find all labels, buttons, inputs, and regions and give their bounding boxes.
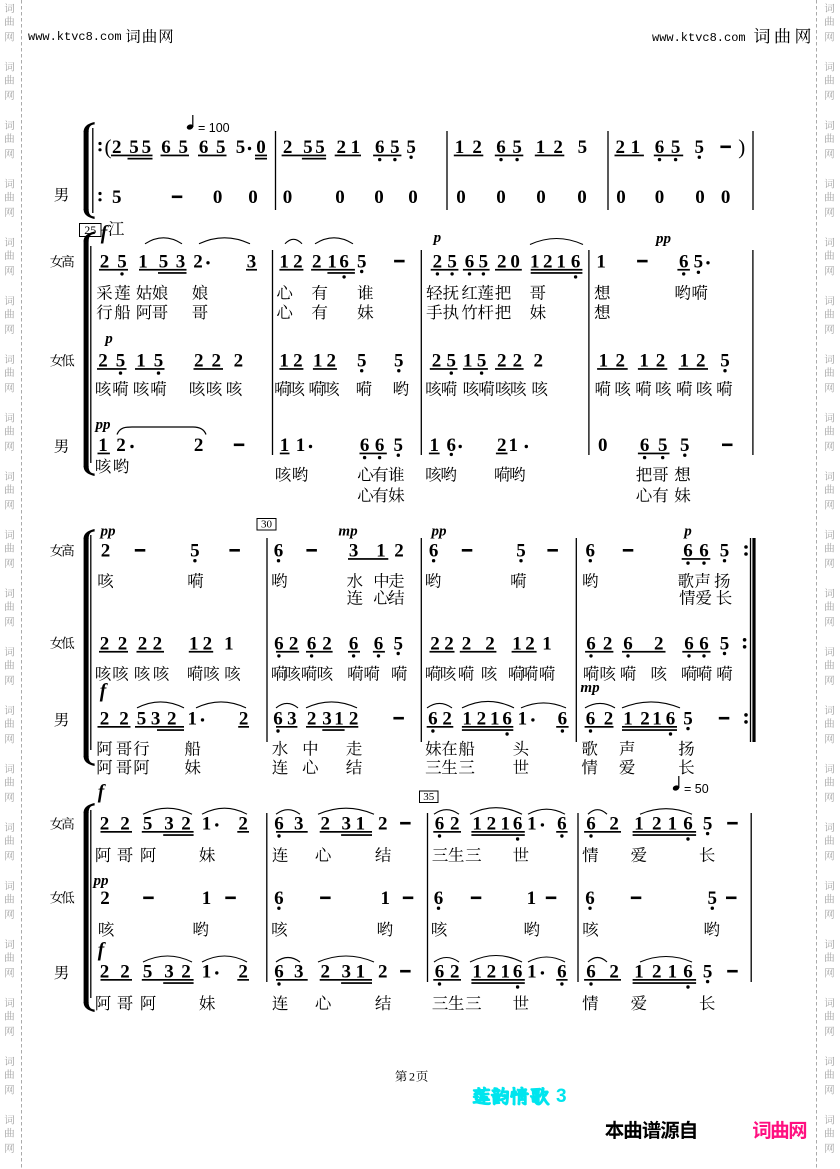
- svg-text:pp: pp: [430, 524, 448, 540]
- svg-text:5: 5: [708, 888, 718, 909]
- svg-text:2: 2: [101, 541, 111, 562]
- svg-text:5: 5: [516, 541, 526, 562]
- svg-text:1: 1: [381, 888, 391, 909]
- svg-text:1: 1: [527, 888, 537, 909]
- svg-text:00: 00: [213, 187, 258, 208]
- svg-text:5: 5: [703, 961, 713, 982]
- svg-text:pp: pp: [654, 231, 672, 247]
- svg-text:5: 5: [112, 187, 122, 208]
- svg-text:1: 1: [202, 888, 212, 909]
- svg-text:mp: mp: [338, 524, 358, 540]
- svg-text:mp: mp: [580, 680, 600, 696]
- svg-text:(: (: [105, 135, 112, 159]
- svg-text:pp: pp: [94, 417, 112, 433]
- svg-text:5: 5: [703, 813, 713, 834]
- svg-text:0000: 0000: [456, 187, 587, 208]
- svg-text:www.ktvc8.com: www.ktvc8.com: [28, 30, 122, 44]
- svg-text:5: 5: [683, 708, 693, 729]
- svg-text:= 100: = 100: [198, 121, 230, 135]
- svg-text:0: 0: [598, 435, 608, 456]
- svg-text:30: 30: [261, 519, 273, 531]
- svg-text:f: f: [98, 940, 107, 961]
- svg-text:35: 35: [423, 791, 435, 803]
- svg-text:0000: 0000: [283, 187, 418, 208]
- svg-text:p: p: [682, 524, 692, 540]
- svg-text:p: p: [432, 230, 442, 246]
- svg-text:f: f: [101, 223, 110, 244]
- svg-text:pp: pp: [92, 873, 110, 889]
- svg-text:2: 2: [194, 435, 204, 456]
- svg-text:0000: 0000: [616, 187, 730, 208]
- svg-text:= 50: = 50: [684, 782, 709, 796]
- svg-text:3: 3: [556, 1086, 567, 1107]
- svg-text:2: 2: [100, 888, 110, 909]
- svg-text:pp: pp: [99, 524, 117, 540]
- svg-text:2: 2: [409, 1070, 415, 1084]
- svg-text:5: 5: [190, 541, 200, 562]
- svg-text:6: 6: [274, 888, 284, 909]
- svg-text:1: 1: [596, 251, 606, 272]
- svg-text:f: f: [100, 681, 109, 702]
- svg-text:6: 6: [434, 888, 444, 909]
- svg-text:www.ktvc8.com: www.ktvc8.com: [652, 31, 746, 45]
- svg-text:6: 6: [585, 888, 595, 909]
- svg-text:6: 6: [586, 541, 596, 562]
- svg-text:): ): [738, 135, 745, 159]
- svg-text:f: f: [98, 782, 107, 803]
- svg-text:6: 6: [429, 541, 439, 562]
- svg-text:6: 6: [274, 541, 284, 562]
- svg-text:p: p: [103, 331, 113, 347]
